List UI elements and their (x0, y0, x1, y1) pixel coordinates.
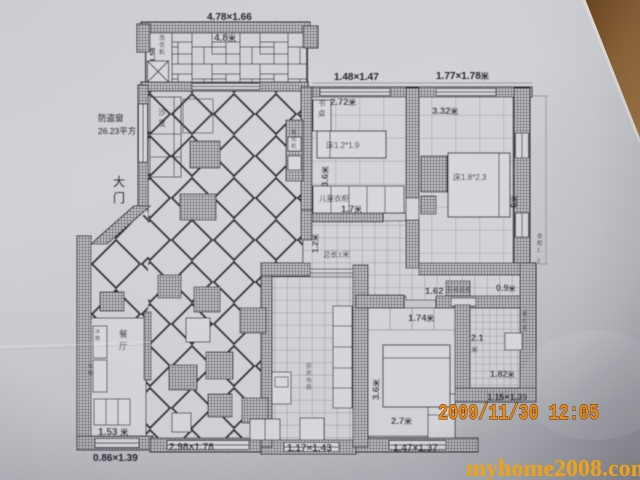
svg-text:myhome2008.com: myhome2008.com (466, 456, 640, 480)
svg-text:2009/11/30 12:05: 2009/11/30 12:05 (438, 401, 599, 426)
